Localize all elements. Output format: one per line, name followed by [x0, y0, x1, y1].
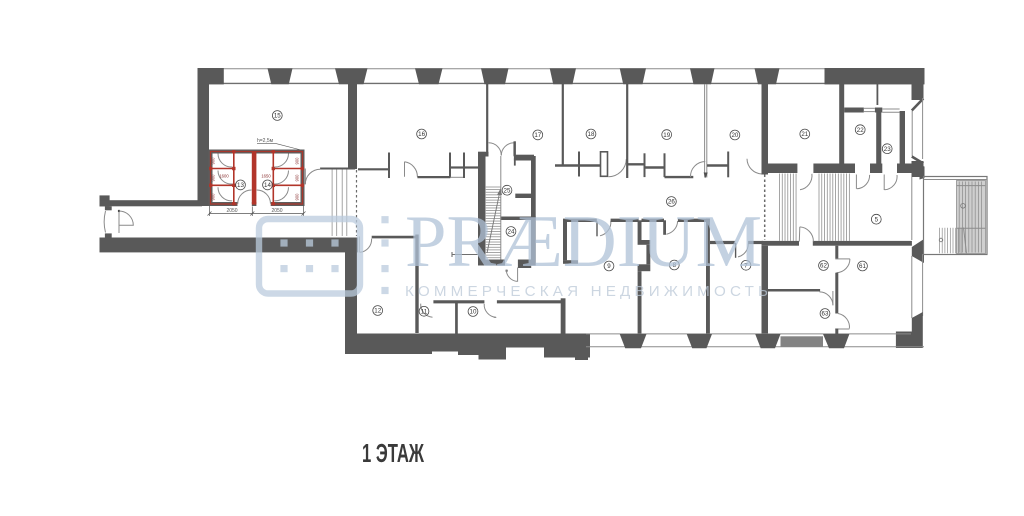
svg-text:12: 12 — [374, 308, 381, 315]
svg-text:1 ЭТАЖ: 1 ЭТАЖ — [362, 440, 425, 468]
svg-text:21: 21 — [801, 131, 808, 138]
svg-text:13: 13 — [237, 182, 244, 189]
svg-text:2050: 2050 — [226, 208, 237, 214]
svg-text:900: 900 — [295, 174, 300, 182]
svg-text:PRÆDIUM: PRÆDIUM — [405, 201, 762, 283]
svg-text:14: 14 — [264, 182, 271, 189]
svg-text:КОММЕРЧЕСКАЯ НЕДВИЖИМОСТЬ: КОММЕРЧЕСКАЯ НЕДВИЖИМОСТЬ — [405, 283, 768, 300]
svg-text:16: 16 — [418, 131, 425, 138]
svg-text:63: 63 — [822, 311, 829, 318]
svg-text:61: 61 — [859, 263, 866, 270]
svg-text:20: 20 — [731, 132, 738, 139]
svg-text:22: 22 — [857, 127, 864, 134]
svg-text:19: 19 — [663, 132, 670, 139]
svg-text:18: 18 — [588, 131, 595, 138]
svg-text:900: 900 — [295, 193, 300, 201]
svg-text:25: 25 — [504, 187, 511, 194]
svg-text:2050: 2050 — [271, 208, 282, 214]
svg-text:900: 900 — [211, 174, 216, 182]
svg-text:11: 11 — [421, 309, 428, 316]
svg-text:1650: 1650 — [261, 174, 271, 179]
svg-text:900: 900 — [295, 157, 300, 165]
svg-text:17: 17 — [534, 132, 541, 139]
svg-text:23: 23 — [884, 146, 891, 153]
svg-text:900: 900 — [211, 193, 216, 201]
svg-text:900: 900 — [211, 157, 216, 165]
svg-text:10: 10 — [470, 309, 477, 316]
svg-text:62: 62 — [820, 263, 827, 270]
svg-text:5: 5 — [875, 216, 879, 223]
svg-text:15: 15 — [274, 113, 281, 120]
svg-text:1600: 1600 — [219, 174, 229, 179]
svg-text:h=2,5м: h=2,5м — [257, 138, 274, 144]
